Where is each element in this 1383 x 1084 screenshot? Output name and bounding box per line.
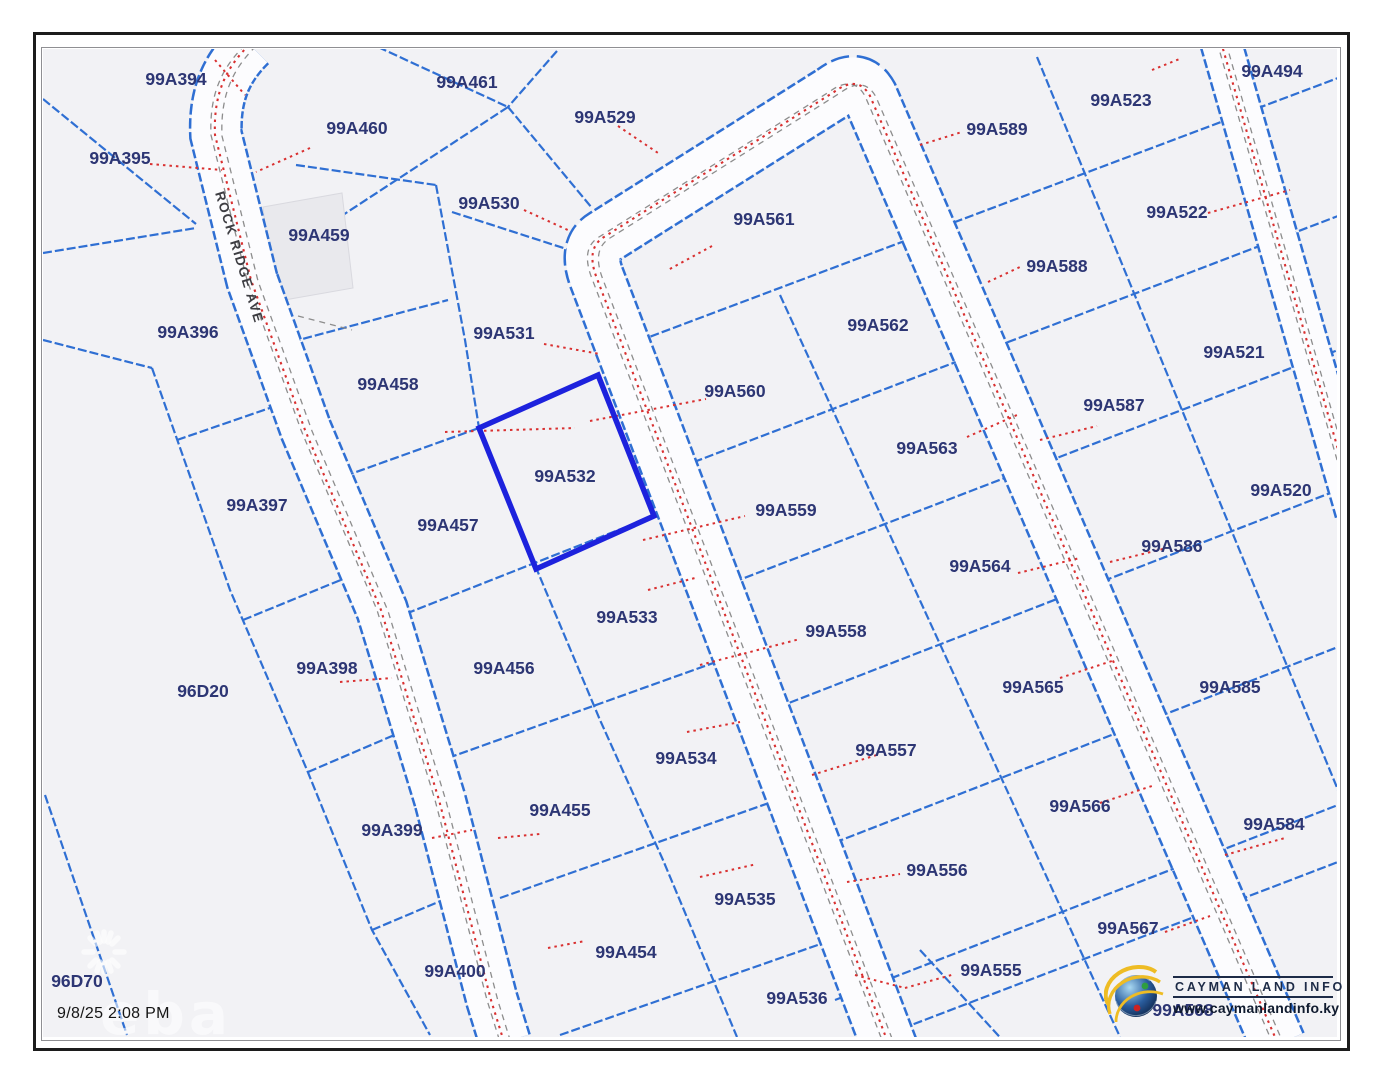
map-export-page: ROCK RIDGE AVE 99A39499A39599A39699A3979… xyxy=(0,0,1383,1084)
parcel-label-99A586: 99A586 xyxy=(1141,536,1203,556)
parcel-label-99A555: 99A555 xyxy=(960,960,1022,980)
parcel-label-99A522: 99A522 xyxy=(1146,202,1208,222)
parcel-label-99A531: 99A531 xyxy=(473,323,535,343)
parcel-label-99A399: 99A399 xyxy=(361,820,423,840)
parcel-label-99A459: 99A459 xyxy=(288,225,350,245)
parcel-label-96D70: 96D70 xyxy=(51,971,103,991)
parcel-label-99A560: 99A560 xyxy=(704,381,766,401)
parcel-label-99A397: 99A397 xyxy=(226,495,287,515)
parcel-label-99A457: 99A457 xyxy=(417,515,478,535)
logo-title: CAYMAN LAND INFO xyxy=(1173,978,1333,996)
logo-divider-bottom xyxy=(1173,996,1333,998)
parcel-label-99A559: 99A559 xyxy=(755,500,817,520)
globe-red-dot xyxy=(1134,1005,1141,1012)
parcel-label-99A494: 99A494 xyxy=(1241,61,1303,81)
parcel-label-99A532: 99A532 xyxy=(534,466,596,486)
parcel-label-99A533: 99A533 xyxy=(596,607,658,627)
parcel-label-99A567: 99A567 xyxy=(1097,918,1158,938)
parcel-label-99A587: 99A587 xyxy=(1083,395,1144,415)
parcel-label-99A535: 99A535 xyxy=(714,889,776,909)
parcel-label-99A534: 99A534 xyxy=(655,748,717,768)
parcel-label-99A455: 99A455 xyxy=(529,800,591,820)
parcel-label-99A394: 99A394 xyxy=(145,69,207,89)
parcel-label-99A530: 99A530 xyxy=(458,193,520,213)
logo: CAYMAN LAND INFO www.caymanlandinfo.ky xyxy=(1104,964,1333,1028)
parcel-label-99A588: 99A588 xyxy=(1026,256,1088,276)
parcel-label-99A536: 99A536 xyxy=(766,988,828,1008)
parcel-label-99A400: 99A400 xyxy=(424,961,486,981)
parcel-label-99A521: 99A521 xyxy=(1203,342,1265,362)
cadastral-map-canvas: ROCK RIDGE AVE 99A39499A39599A39699A3979… xyxy=(0,0,1383,1084)
parcel-label-99A561: 99A561 xyxy=(733,209,795,229)
parcel-label-99A456: 99A456 xyxy=(473,658,535,678)
parcel-label-99A562: 99A562 xyxy=(847,315,909,335)
parcel-label-99A558: 99A558 xyxy=(805,621,867,641)
logo-website: www.caymanlandinfo.ky xyxy=(1173,1000,1333,1016)
parcel-label-99A565: 99A565 xyxy=(1002,677,1064,697)
parcel-label-99A395: 99A395 xyxy=(89,148,151,168)
parcel-label-99A557: 99A557 xyxy=(855,740,916,760)
globe-icon xyxy=(1104,964,1168,1028)
parcel-label-99A458: 99A458 xyxy=(357,374,419,394)
parcel-label-99A454: 99A454 xyxy=(595,942,657,962)
parcel-label-99A523: 99A523 xyxy=(1090,90,1152,110)
globe-green-dot xyxy=(1142,983,1149,990)
parcel-label-99A563: 99A563 xyxy=(896,438,958,458)
parcel-label-99A566: 99A566 xyxy=(1049,796,1111,816)
parcel-label-99A529: 99A529 xyxy=(574,107,636,127)
parcel-label-99A460: 99A460 xyxy=(326,118,388,138)
parcel-label-99A396: 99A396 xyxy=(157,322,219,342)
parcel-label-99A589: 99A589 xyxy=(966,119,1028,139)
parcel-label-99A564: 99A564 xyxy=(949,556,1011,576)
timestamp: 9/8/25 2:08 PM xyxy=(57,1005,170,1023)
parcel-label-99A520: 99A520 xyxy=(1250,480,1312,500)
parcel-label-99A584: 99A584 xyxy=(1243,814,1305,834)
parcel-label-99A585: 99A585 xyxy=(1199,677,1261,697)
parcel-label-99A398: 99A398 xyxy=(296,658,358,678)
parcel-label-99A461: 99A461 xyxy=(436,72,498,92)
parcel-label-99A556: 99A556 xyxy=(906,860,968,880)
parcel-label-96D20: 96D20 xyxy=(177,681,229,701)
